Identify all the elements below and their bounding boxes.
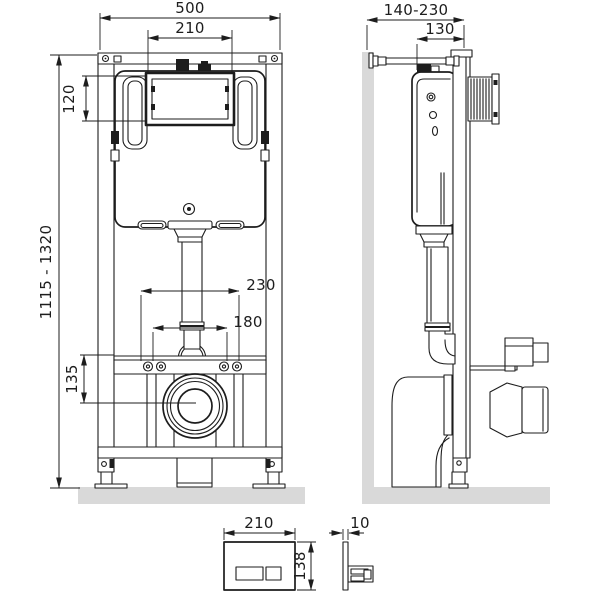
flush-plate-sleeve xyxy=(468,74,499,124)
dim-depth-range-label: 140-230 xyxy=(384,1,449,19)
dim-plate-thickness-label: 10 xyxy=(350,514,370,532)
adjustable-foot-right xyxy=(268,472,279,484)
water-inlet-connector xyxy=(176,59,189,71)
flush-pipe-front xyxy=(168,221,212,371)
wall-side xyxy=(362,52,374,487)
dim-frame-depth-label: 130 xyxy=(425,20,455,38)
fixing-bolt-icon xyxy=(233,362,242,371)
dim-bolt-spacing-narrow-label: 180 xyxy=(233,313,263,331)
dim-height-range-label: 1115 - 1320 xyxy=(37,225,55,320)
flush-button-small xyxy=(266,567,281,580)
dim-plate-height-label: 138 xyxy=(291,551,309,581)
drain-connector xyxy=(490,383,522,437)
dim-window-width-label: 210 xyxy=(175,19,205,37)
dim-drain-height-label: 135 xyxy=(63,364,81,394)
fixing-bolt-icon xyxy=(144,362,153,371)
side-view: 140-230 130 xyxy=(362,1,550,504)
dim-window-height-label: 120 xyxy=(60,84,78,114)
fixing-bolt-icon xyxy=(220,362,229,371)
dim-bolt-spacing-wide-label: 230 xyxy=(246,276,276,294)
floor-front xyxy=(78,487,305,504)
cistern-side xyxy=(412,64,457,247)
cistern-front xyxy=(111,59,269,229)
flush-pipe-side xyxy=(425,247,548,371)
front-view: 500 210 120 1115 - 1320 135 23 xyxy=(37,0,305,504)
installation-frame-drawing: 500 210 120 1115 - 1320 135 23 xyxy=(0,0,600,600)
wall-bracket-rod xyxy=(369,53,459,68)
flush-plate-side-view: 10 xyxy=(329,514,373,590)
floor-side xyxy=(362,487,550,504)
technical-drawing: 500 210 120 1115 - 1320 135 23 xyxy=(0,0,600,600)
dim-plate-width-label: 210 xyxy=(244,514,274,532)
dim-overall-width-label: 500 xyxy=(175,0,205,17)
access-window xyxy=(146,73,234,125)
fixing-rail xyxy=(114,356,266,374)
adjustable-foot-left xyxy=(101,472,112,484)
flush-plate-front-view: 210 138 xyxy=(224,514,316,590)
drain-outlet-front xyxy=(163,374,227,487)
flush-button-large xyxy=(236,567,263,580)
fixing-bolt-icon xyxy=(157,362,166,371)
flush-bend-connector xyxy=(505,338,533,366)
